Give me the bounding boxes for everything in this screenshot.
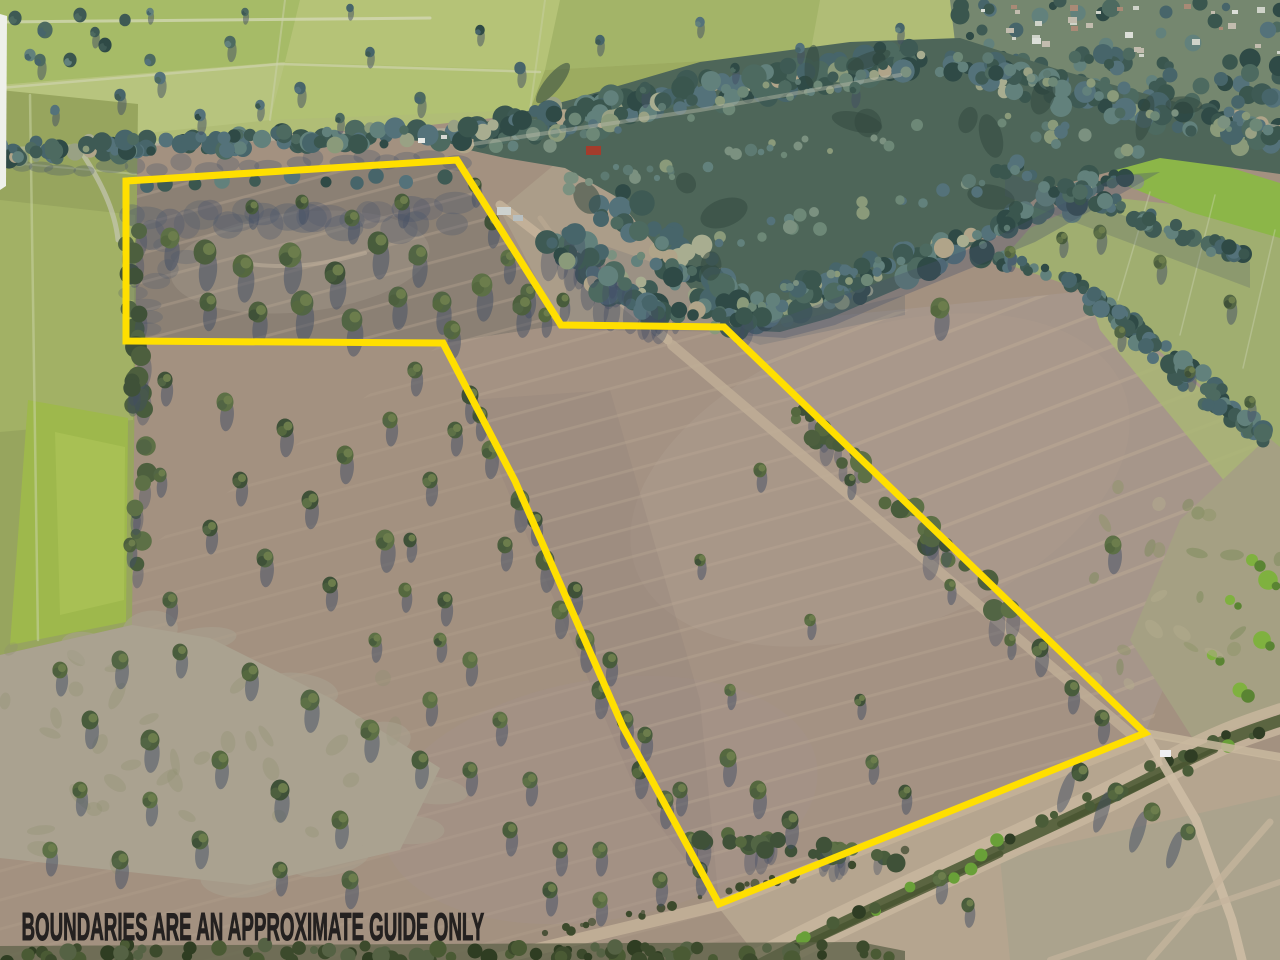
svg-text:BOUNDARIES ARE AN APPROXIMATE: BOUNDARIES ARE AN APPROXIMATE GUIDE ONLY [22, 906, 485, 949]
